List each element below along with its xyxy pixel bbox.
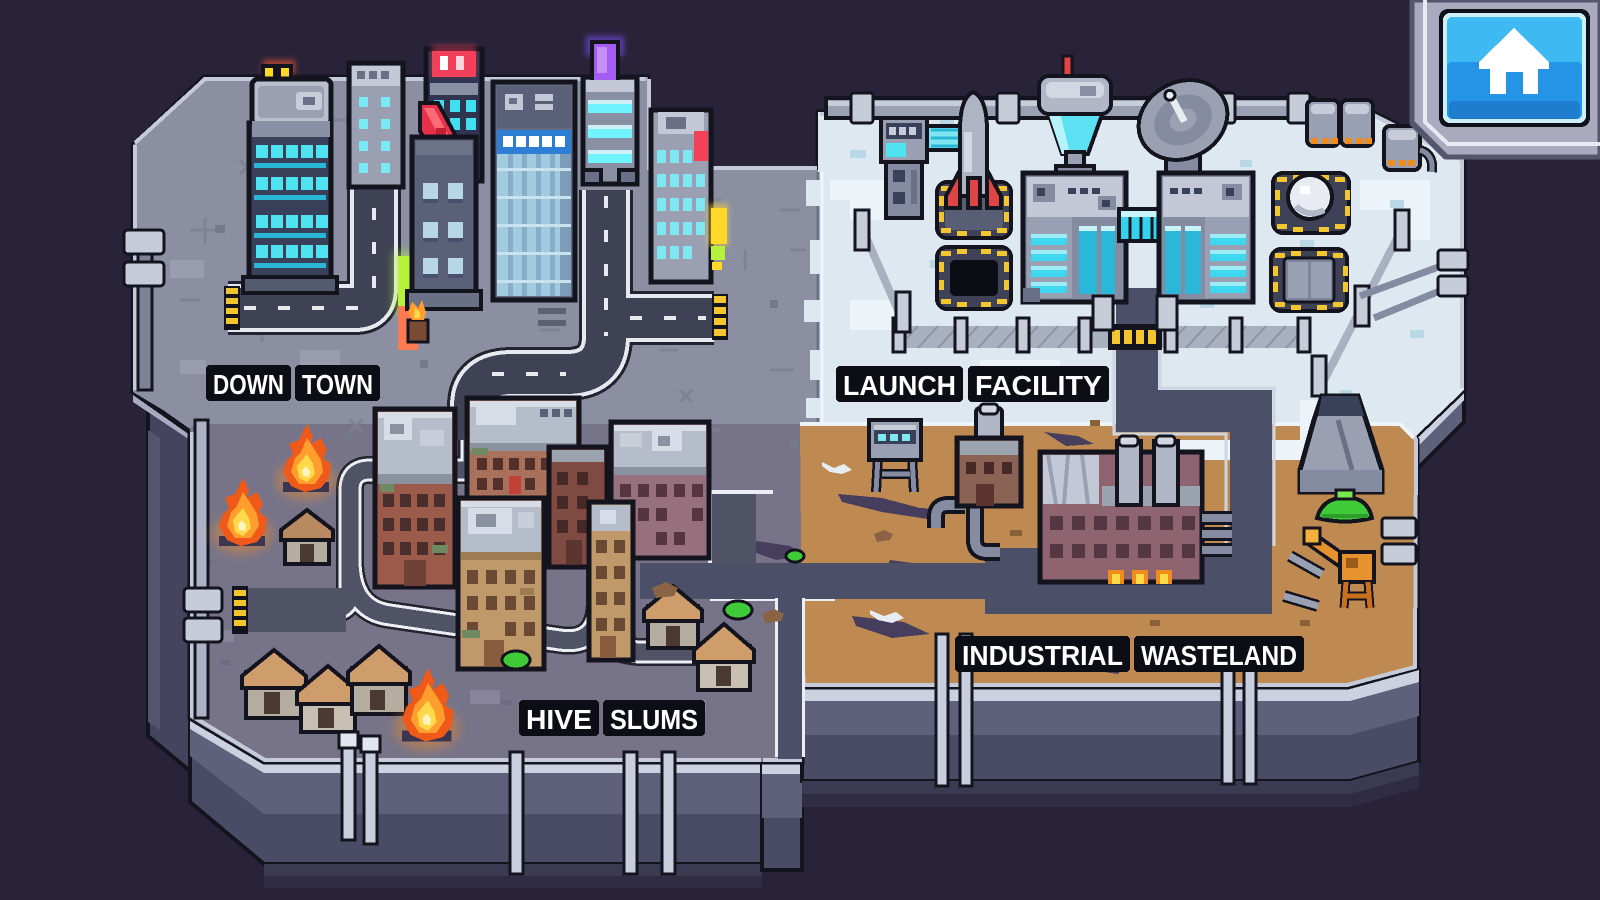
svg-text:TOWN: TOWN — [302, 369, 373, 400]
svg-text:LAUNCH: LAUNCH — [843, 370, 956, 401]
svg-text:INDUSTRIAL: INDUSTRIAL — [962, 640, 1123, 671]
svg-text:SLUMS: SLUMS — [610, 704, 698, 735]
svg-text:DOWN: DOWN — [213, 369, 284, 400]
svg-text:HIVE: HIVE — [526, 704, 592, 735]
svg-text:FACILITY: FACILITY — [975, 370, 1102, 401]
svg-text:WASTELAND: WASTELAND — [1141, 640, 1297, 671]
